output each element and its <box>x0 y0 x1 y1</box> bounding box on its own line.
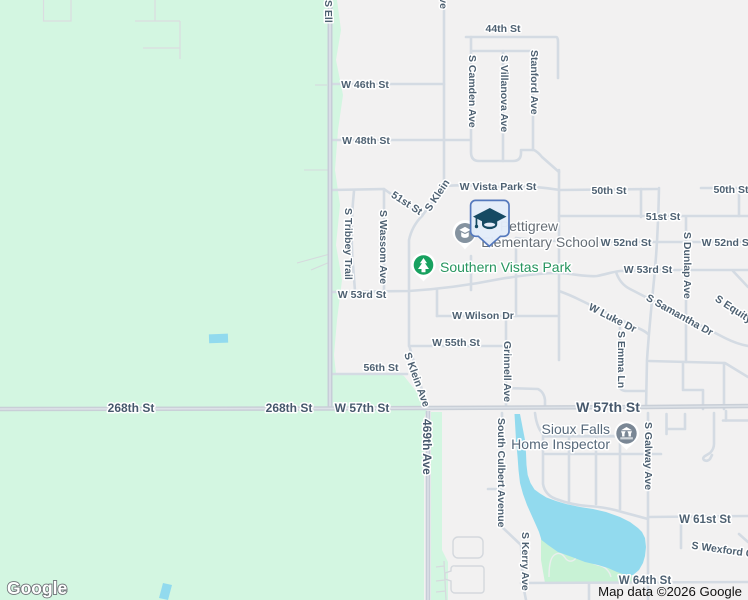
svg-text:S Wassom Ave: S Wassom Ave <box>377 210 389 284</box>
svg-text:W 53rd St: W 53rd St <box>624 264 673 276</box>
svg-text:S Tribbey Trail: S Tribbey Trail <box>342 208 354 280</box>
svg-text:W 55th St: W 55th St <box>432 337 480 349</box>
svg-text:W 61st St: W 61st St <box>679 514 731 526</box>
svg-text:Map data ©2026 Google: Map data ©2026 Google <box>598 584 742 599</box>
svg-text:268th St: 268th St <box>266 401 313 415</box>
svg-text:W 52nd St: W 52nd St <box>601 237 652 249</box>
svg-text:S Kerry Ave: S Kerry Ave <box>519 532 531 591</box>
svg-text:W Vista Park St: W Vista Park St <box>460 181 537 193</box>
svg-text:South Culbert Avenue: South Culbert Avenue <box>495 418 507 528</box>
svg-text:S Ell: S Ell <box>322 0 334 23</box>
svg-text:51st St: 51st St <box>646 211 681 223</box>
svg-text:56th St: 56th St <box>363 362 399 374</box>
svg-text:Home Inspector: Home Inspector <box>511 436 610 452</box>
svg-text:W 52nd St: W 52nd St <box>702 237 748 249</box>
svg-text:S Camden Ave: S Camden Ave <box>466 55 478 128</box>
svg-text:Google: Google <box>7 578 68 598</box>
svg-text:W 53rd St: W 53rd St <box>338 289 387 301</box>
svg-text:S Dunlap Ave: S Dunlap Ave <box>681 232 693 299</box>
svg-text:W Wilson Dr: W Wilson Dr <box>452 310 514 322</box>
svg-text:S Villanova Ave: S Villanova Ave <box>498 55 510 132</box>
svg-text:W 46th St: W 46th St <box>341 79 389 91</box>
svg-text:469th Ave: 469th Ave <box>420 419 434 475</box>
svg-text:50th St: 50th St <box>713 184 748 196</box>
svg-text:50th St: 50th St <box>591 185 627 197</box>
svg-text:Stanford Ave: Stanford Ave <box>528 50 540 115</box>
svg-text:268th St: 268th St <box>108 401 155 415</box>
svg-text:S Galway Ave: S Galway Ave <box>642 422 654 490</box>
svg-text:Sioux Falls: Sioux Falls <box>542 421 610 437</box>
svg-text:Southern Vistas Park: Southern Vistas Park <box>440 259 572 275</box>
svg-text:Grinnell Ave: Grinnell Ave <box>501 341 513 402</box>
svg-text:S Klein Ave: S Klein Ave <box>437 0 449 9</box>
svg-text:W 57th St: W 57th St <box>576 399 640 415</box>
svg-text:W 48th St: W 48th St <box>342 135 390 147</box>
svg-text:44th St: 44th St <box>485 23 521 35</box>
svg-text:S Emma Ln: S Emma Ln <box>615 331 627 388</box>
svg-text:W 57th St: W 57th St <box>335 401 390 415</box>
